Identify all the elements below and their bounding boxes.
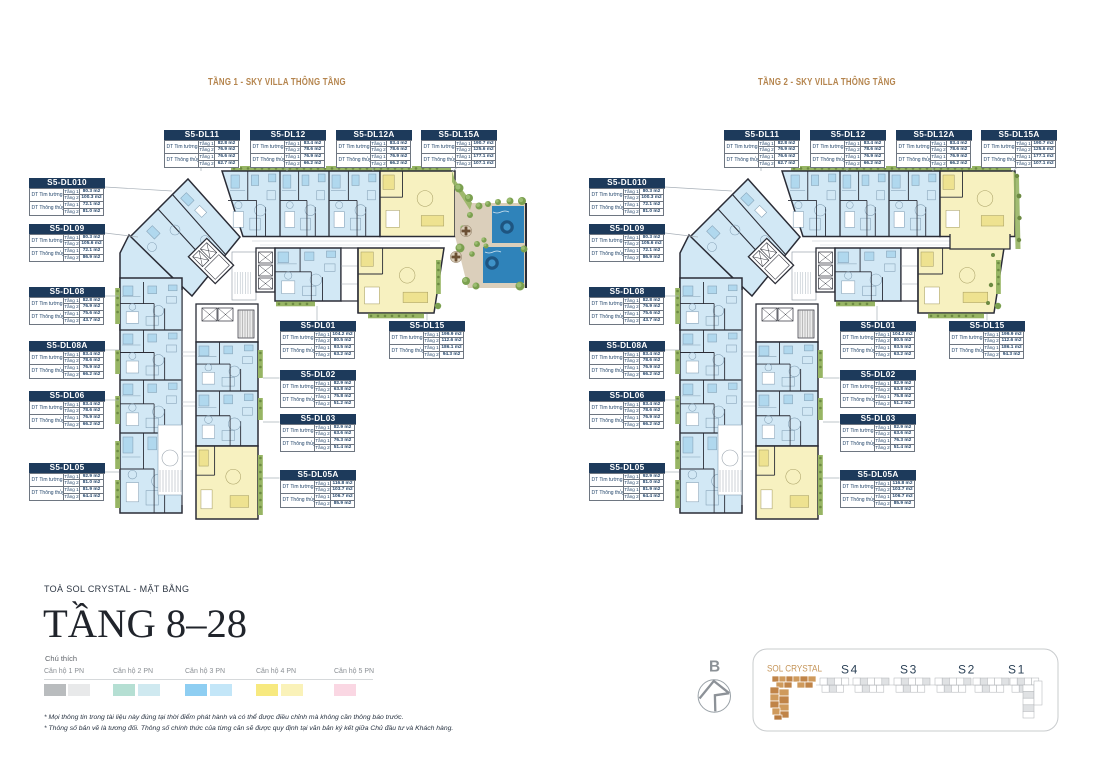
svg-text:SOL CRYSTAL: SOL CRYSTAL [767, 664, 822, 674]
svg-text:S1: S1 [1008, 663, 1026, 677]
svg-text:S2: S2 [958, 663, 976, 677]
svg-text:S4: S4 [841, 663, 859, 677]
svg-text:S3: S3 [900, 663, 918, 677]
svg-text:B: B [709, 659, 720, 676]
